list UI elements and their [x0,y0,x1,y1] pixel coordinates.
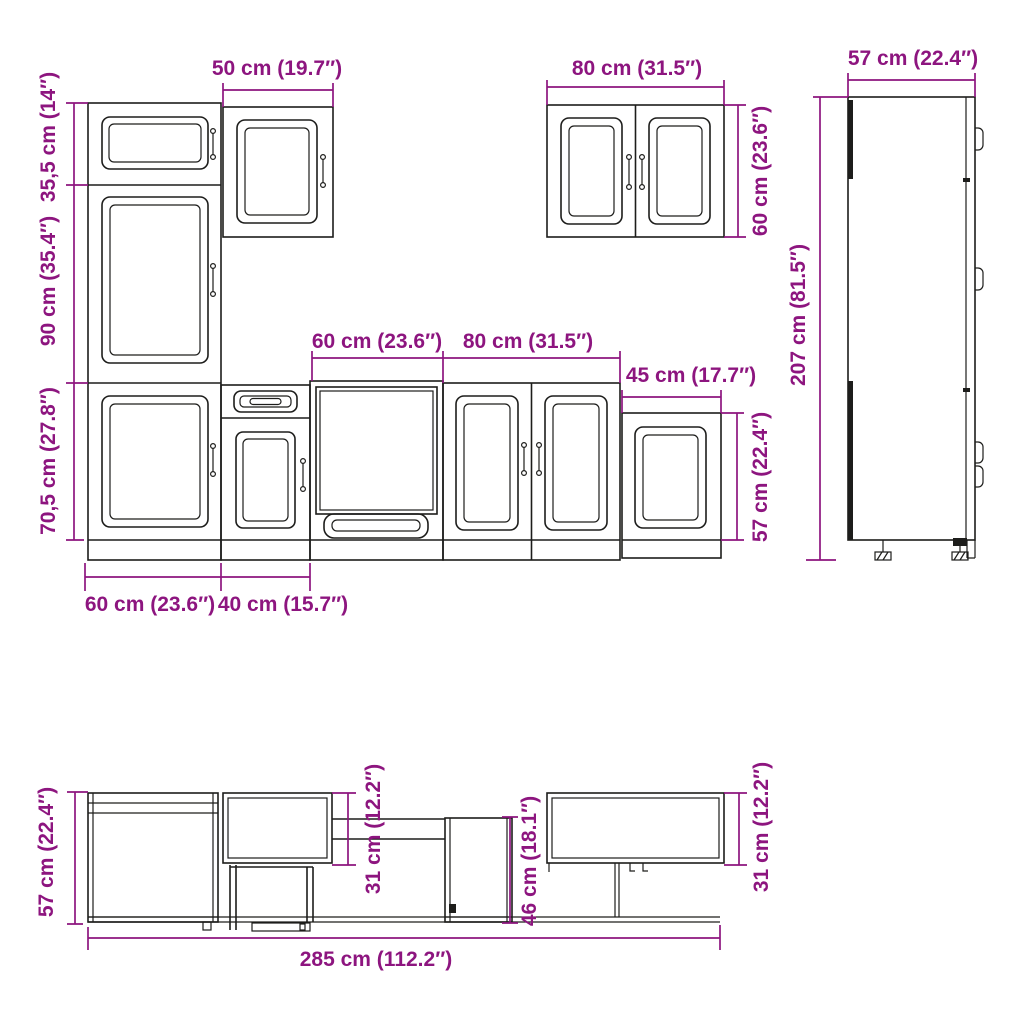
profile-base-cabinet [88,793,218,930]
dim-label-wall45-width: 45 cm (17.7″) [626,364,756,388]
profile-wall-cabinet-right [547,793,724,917]
door-handle-icon [537,443,542,476]
door-handle-icon [627,155,632,190]
wall-cabinet-45-front [622,413,721,558]
oven-handle-bar-icon [324,514,428,538]
adjustable-foot-icon [952,538,968,560]
dim-label-profile-depth-mid: 31 cm (12.2″) [362,764,386,894]
dim-label-profile-depth-right: 31 cm (12.2″) [750,762,774,892]
foot-icon [203,922,211,930]
side-handle-icon [975,268,983,290]
door-handle-icon [522,443,527,476]
hinge-icon [449,904,456,913]
side-handle-icon [975,128,983,150]
dim-label-profile-clearance: 46 cm (18.1″) [518,796,542,926]
kitchen-cabinet-dimension-diagram: 50 cm (19.7″) 35,5 cm (14″) 90 cm (35.4″… [0,0,1024,1024]
base-cabinet-80-front [443,383,620,560]
wall-cabinet-80-front [547,105,724,237]
dim-label-side-depth: 57 cm (22.4″) [848,47,978,71]
door-handle-icon [211,264,216,297]
mounting-hook-icon [630,863,648,871]
dim-label-tall-base-height: 70,5 cm (27.8″) [37,387,61,535]
door-handle-icon [211,444,216,477]
dim-label-wall50-width: 50 cm (19.7″) [212,57,342,81]
base-cabinet-40-front [221,385,310,560]
profile-wall-cabinet-mid [223,793,332,863]
adjustable-foot-icon [875,540,891,560]
dim-label-wall80-width: 80 cm (31.5″) [572,57,702,81]
dim-label-oven60-width: 60 cm (23.6″) [312,330,442,354]
door-handle-icon [640,155,645,190]
tall-cabinet-side-view [848,97,983,560]
dim-label-wall45-height: 57 cm (22.4″) [749,412,773,542]
side-handle-icon [975,466,983,487]
side-handle-icon [975,442,983,463]
dim-label-total-length: 285 cm (112.2″) [300,948,453,972]
door-handle-icon [301,459,306,492]
dim-label-tall-width: 60 cm (23.6″) [85,593,215,617]
wall-cabinet-50-front [223,107,333,237]
profile-shelf-lines [332,819,445,839]
dim-label-profile-base-height: 57 cm (22.4″) [35,787,59,917]
dim-label-tall-top-height: 35,5 cm (14″) [37,72,61,202]
dim-label-tall-mid-height: 90 cm (35.4″) [37,216,61,346]
support-leg [615,863,619,917]
dim-label-base80-width: 80 cm (31.5″) [463,330,593,354]
profile-base-cabinet-mid [230,865,313,931]
profile-open-frame [445,818,512,922]
diagram-line-art [0,0,1024,1024]
dim-label-wall80-height: 60 cm (23.6″) [749,106,773,236]
oven-cabinet-60-front [310,381,443,560]
foot-icon [300,924,305,930]
drawer-handle-icon [250,399,281,405]
dim-label-side-height: 207 cm (81.5″) [787,244,811,386]
tall-cabinet-front [88,103,221,560]
dim-label-base40-width: 40 cm (15.7″) [218,593,348,617]
door-handle-icon [211,129,216,160]
door-handle-icon [321,155,326,188]
